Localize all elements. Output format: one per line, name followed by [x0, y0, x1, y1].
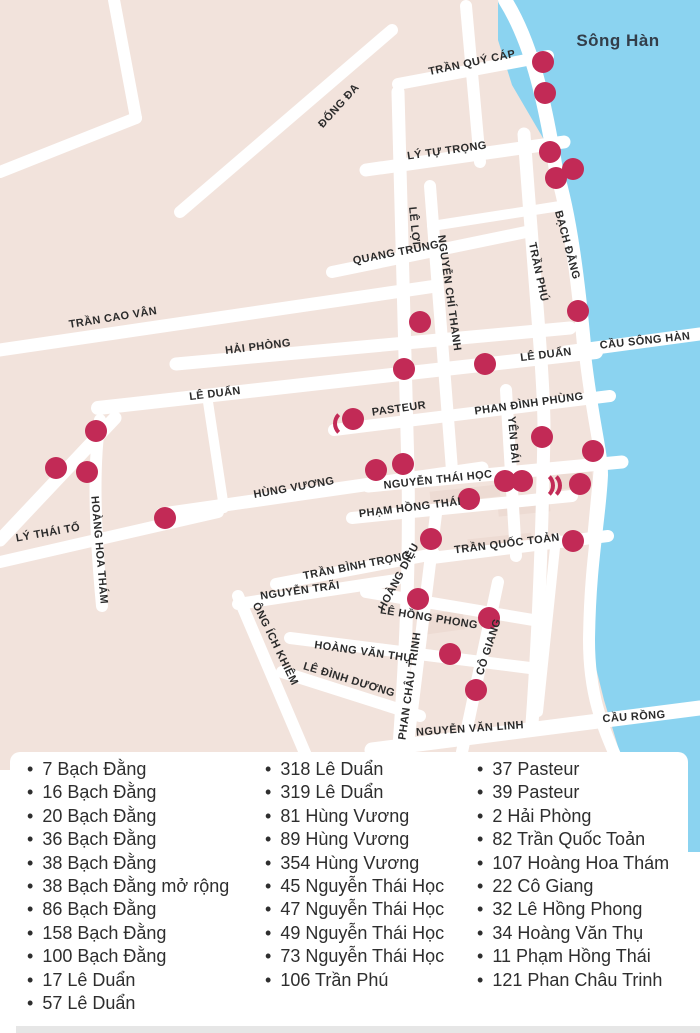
marker-dot [393, 358, 415, 380]
list-item: 100 Bạch Đằng [27, 945, 229, 968]
list-item: 16 Bạch Đằng [27, 781, 229, 804]
bottom-strip [16, 1026, 700, 1033]
list-item: 45 Nguyễn Thái Học [265, 875, 444, 898]
marker-dot [392, 453, 414, 475]
marker-dot [531, 426, 553, 448]
list-item: 106 Trần Phú [265, 969, 444, 992]
marker-dot [45, 457, 67, 479]
marker-dot [545, 167, 567, 189]
marker-stack-arc [533, 471, 562, 500]
marker-dot [365, 459, 387, 481]
marker-stack-arc [333, 409, 362, 438]
marker-dot [420, 528, 442, 550]
marker-dot [532, 51, 554, 73]
list-item: 39 Pasteur [477, 781, 669, 804]
list-item: 319 Lê Duẩn [265, 781, 444, 804]
list-item: 318 Lê Duẩn [265, 758, 444, 781]
list-item: 38 Bạch Đằng mở rộng [27, 875, 229, 898]
list-item: 34 Hoàng Văn Thụ [477, 922, 669, 945]
list-item: 2 Hải Phòng [477, 805, 669, 828]
marker-dot [534, 82, 556, 104]
list-item: 354 Hùng Vương [265, 852, 444, 875]
address-column-1: 7 Bạch Đằng16 Bạch Đằng20 Bạch Đằng36 Bạ… [27, 758, 229, 1015]
list-item: 47 Nguyễn Thái Học [265, 898, 444, 921]
water-label: Sông Hàn [576, 31, 659, 51]
marker-dot [567, 300, 589, 322]
marker-dot [562, 530, 584, 552]
marker-dot [407, 588, 429, 610]
marker-dot [582, 440, 604, 462]
list-item: 82 Trần Quốc Toản [477, 828, 669, 851]
list-item: 89 Hùng Vương [265, 828, 444, 851]
marker-dot [154, 507, 176, 529]
marker-dot [76, 461, 98, 483]
list-item: 121 Phan Châu Trinh [477, 969, 669, 992]
address-column-3: 37 Pasteur39 Pasteur2 Hải Phòng82 Trần Q… [477, 758, 669, 992]
marker-dot [474, 353, 496, 375]
list-item: 86 Bạch Đằng [27, 898, 229, 921]
marker-dot [569, 473, 591, 495]
address-list: 7 Bạch Đằng16 Bạch Đằng20 Bạch Đằng36 Bạ… [10, 752, 688, 1033]
list-item: 49 Nguyễn Thái Học [265, 922, 444, 945]
list-item: 38 Bạch Đằng [27, 852, 229, 875]
list-item: 22 Cô Giang [477, 875, 669, 898]
list-item: 36 Bạch Đằng [27, 828, 229, 851]
list-item: 7 Bạch Đằng [27, 758, 229, 781]
list-item: 17 Lê Duẩn [27, 969, 229, 992]
marker-dot [439, 643, 461, 665]
list-item: 73 Nguyễn Thái Học [265, 945, 444, 968]
marker-dot [85, 420, 107, 442]
list-item: 20 Bạch Đằng [27, 805, 229, 828]
list-item: 32 Lê Hồng Phong [477, 898, 669, 921]
list-item: 37 Pasteur [477, 758, 669, 781]
map: TRẦN QUÝ CÁPSông HànĐỐNG ĐALÝ TỰ TRỌNGLÊ… [0, 0, 700, 860]
marker-dot [409, 311, 431, 333]
list-item: 57 Lê Duẩn [27, 992, 229, 1015]
marker-dot [465, 679, 487, 701]
list-item: 107 Hoàng Hoa Thám [477, 852, 669, 875]
list-item: 81 Hùng Vương [265, 805, 444, 828]
marker-dot [539, 141, 561, 163]
list-item: 158 Bạch Đằng [27, 922, 229, 945]
list-item: 11 Phạm Hồng Thái [477, 945, 669, 968]
address-column-2: 318 Lê Duẩn319 Lê Duẩn81 Hùng Vương89 Hù… [265, 758, 444, 992]
